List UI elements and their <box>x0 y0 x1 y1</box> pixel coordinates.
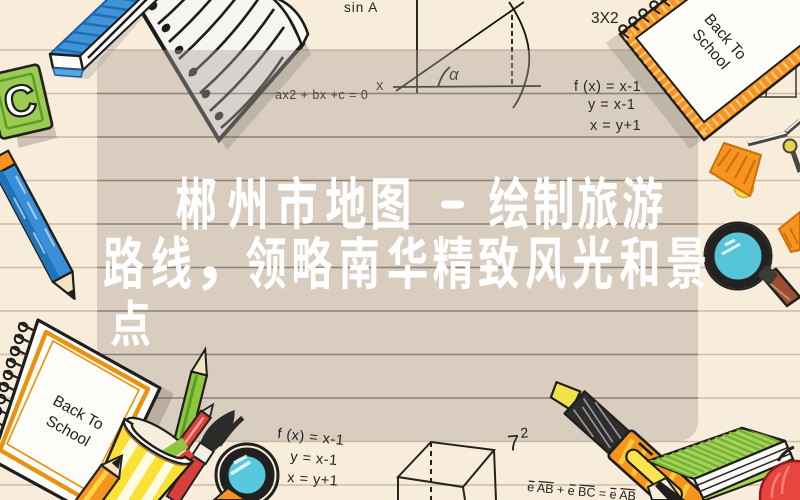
svg-text:sin A: sin A <box>344 0 378 15</box>
svg-text:2: 2 <box>520 424 529 441</box>
svg-text:7: 7 <box>506 430 520 456</box>
svg-text:y = x-1: y = x-1 <box>588 97 635 113</box>
svg-text:f (x) = x-1: f (x) = x-1 <box>574 79 641 95</box>
svg-text:3X2: 3X2 <box>591 10 619 27</box>
svg-text:x = y+1: x = y+1 <box>590 118 641 134</box>
